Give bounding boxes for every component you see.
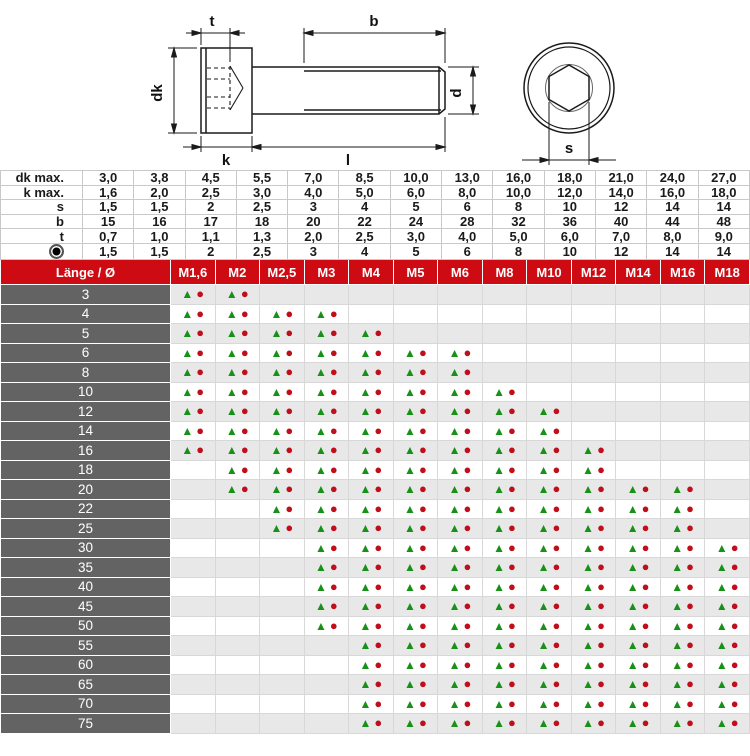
availability-cell: ▲●	[438, 441, 483, 461]
availability-cell	[260, 558, 305, 578]
availability-cell: ▲●	[260, 324, 305, 344]
availability-cell: ▲●	[705, 636, 750, 656]
availability-cell: ▲●	[616, 597, 661, 617]
triangle-icon: ▲	[315, 385, 327, 399]
length-label: 14	[1, 421, 171, 441]
spec-row-label: dk max.	[1, 171, 83, 186]
availability-cell: ▲●	[527, 675, 572, 695]
availability-cell	[215, 519, 260, 539]
triangle-icon: ▲	[226, 463, 238, 477]
availability-cell: ▲●	[304, 538, 349, 558]
circle-icon: ●	[686, 657, 694, 672]
circle-icon: ●	[731, 559, 739, 574]
circle-icon: ●	[508, 442, 516, 457]
availability-cell: ▲●	[616, 577, 661, 597]
circle-icon: ●	[463, 637, 471, 652]
triangle-icon: ▲	[315, 326, 327, 340]
length-label: 16	[1, 441, 171, 461]
triangle-icon: ▲	[315, 619, 327, 633]
spec-value: 1,5	[83, 200, 134, 215]
availability-cell	[260, 655, 305, 675]
availability-cell: ▲●	[527, 558, 572, 578]
spec-value: 5	[390, 200, 441, 215]
availability-cell: ▲●	[482, 421, 527, 441]
length-label: 30	[1, 538, 171, 558]
spec-value: 0,7	[83, 229, 134, 244]
circle-icon: ●	[731, 696, 739, 711]
triangle-icon: ▲	[226, 404, 238, 418]
circle-icon: ●	[597, 637, 605, 652]
availability-cell: ▲●	[438, 499, 483, 519]
circle-icon: ●	[419, 442, 427, 457]
triangle-icon: ▲	[181, 443, 193, 457]
availability-cell: ▲●	[438, 714, 483, 734]
triangle-icon: ▲	[582, 482, 594, 496]
circle-icon: ●	[374, 501, 382, 516]
circle-icon: ●	[463, 442, 471, 457]
circle-icon: ●	[463, 598, 471, 613]
circle-icon: ●	[686, 520, 694, 535]
spec-value: 18	[236, 214, 287, 229]
availability-cell: ▲●	[482, 694, 527, 714]
availability-cell	[438, 304, 483, 324]
triangle-icon: ▲	[226, 365, 238, 379]
availability-cell: ▲●	[304, 421, 349, 441]
triangle-icon: ▲	[360, 638, 372, 652]
triangle-icon: ▲	[449, 521, 461, 535]
circle-icon: ●	[686, 715, 694, 730]
triangle-icon: ▲	[315, 443, 327, 457]
availability-cell: ▲●	[527, 597, 572, 617]
availability-cell: ▲●	[349, 577, 394, 597]
availability-cell: ▲●	[571, 538, 616, 558]
availability-cell	[171, 636, 216, 656]
availability-cell: ▲●	[527, 694, 572, 714]
spec-value: 7,0	[288, 171, 339, 186]
circle-icon: ●	[419, 618, 427, 633]
matrix-row: 25▲●▲●▲●▲●▲●▲●▲●▲●▲●▲●	[1, 519, 750, 539]
circle-icon: ●	[419, 696, 427, 711]
circle-icon: ●	[553, 481, 561, 496]
circle-icon: ●	[597, 501, 605, 516]
triangle-icon: ▲	[226, 443, 238, 457]
triangle-icon: ▲	[360, 463, 372, 477]
triangle-icon: ▲	[538, 677, 550, 691]
triangle-icon: ▲	[404, 404, 416, 418]
circle-icon: ●	[463, 423, 471, 438]
circle-icon: ●	[508, 715, 516, 730]
availability-cell: ▲●	[304, 577, 349, 597]
triangle-icon: ▲	[493, 521, 505, 535]
triangle-icon: ▲	[270, 521, 282, 535]
label-dk: dk	[149, 84, 166, 102]
spec-value: 32	[493, 214, 544, 229]
availability-cell: ▲●	[616, 675, 661, 695]
spec-value: 24,0	[647, 171, 698, 186]
triangle-icon: ▲	[270, 443, 282, 457]
availability-cell	[304, 285, 349, 305]
availability-cell: ▲●	[705, 597, 750, 617]
availability-cell: ▲●	[482, 402, 527, 422]
circle-icon: ●	[285, 462, 293, 477]
circle-icon: ●	[196, 325, 204, 340]
triangle-icon: ▲	[181, 365, 193, 379]
circle-icon: ●	[330, 481, 338, 496]
triangle-icon: ▲	[315, 599, 327, 613]
matrix-row: 10▲●▲●▲●▲●▲●▲●▲●▲●	[1, 382, 750, 402]
availability-cell: ▲●	[482, 519, 527, 539]
circle-icon: ●	[508, 559, 516, 574]
triangle-icon: ▲	[270, 385, 282, 399]
availability-cell	[705, 402, 750, 422]
availability-cell	[171, 499, 216, 519]
availability-cell: ▲●	[393, 343, 438, 363]
circle-icon: ●	[597, 598, 605, 613]
spec-table-body: dk max.3,03,84,55,57,08,510,013,016,018,…	[1, 171, 750, 260]
spec-value: 48	[698, 214, 749, 229]
spec-value: 4,0	[442, 229, 493, 244]
triangle-icon: ▲	[404, 365, 416, 379]
triangle-icon: ▲	[270, 365, 282, 379]
availability-cell	[171, 480, 216, 500]
circle-icon: ●	[463, 715, 471, 730]
length-label: 55	[1, 636, 171, 656]
availability-cell: ▲●	[482, 675, 527, 695]
triangle-icon: ▲	[671, 599, 683, 613]
spec-value: 8,5	[339, 171, 390, 186]
availability-cell	[705, 421, 750, 441]
circle-icon: ●	[374, 364, 382, 379]
availability-cell	[660, 363, 705, 383]
spec-value: 10	[544, 200, 595, 215]
availability-cell	[215, 675, 260, 695]
triangle-icon: ▲	[582, 463, 594, 477]
triangle-icon: ▲	[538, 599, 550, 613]
availability-cell: ▲●	[349, 441, 394, 461]
circle-icon: ●	[686, 618, 694, 633]
triangle-icon: ▲	[181, 346, 193, 360]
matrix-row: 8▲●▲●▲●▲●▲●▲●▲●	[1, 363, 750, 383]
circle-icon: ●	[597, 540, 605, 555]
triangle-icon: ▲	[493, 677, 505, 691]
triangle-icon: ▲	[493, 463, 505, 477]
triangle-icon: ▲	[360, 502, 372, 516]
availability-cell: ▲●	[660, 499, 705, 519]
spec-value: 16,0	[493, 171, 544, 186]
availability-cell: ▲●	[215, 324, 260, 344]
availability-cell: ▲●	[304, 402, 349, 422]
triangle-icon: ▲	[582, 716, 594, 730]
availability-cell: ▲●	[260, 382, 305, 402]
spec-row: dk max.3,03,84,55,57,08,510,013,016,018,…	[1, 171, 750, 186]
triangle-icon: ▲	[404, 385, 416, 399]
triangle-icon: ▲	[493, 560, 505, 574]
availability-cell: ▲●	[171, 421, 216, 441]
availability-cell: ▲●	[705, 714, 750, 734]
availability-cell: ▲●	[660, 597, 705, 617]
triangle-icon: ▲	[671, 482, 683, 496]
circle-icon: ●	[330, 618, 338, 633]
triangle-icon: ▲	[671, 502, 683, 516]
spec-value: 1,3	[236, 229, 287, 244]
matrix-row: 55▲●▲●▲●▲●▲●▲●▲●▲●▲●	[1, 636, 750, 656]
availability-cell	[616, 304, 661, 324]
availability-cell	[616, 402, 661, 422]
availability-cell: ▲●	[393, 363, 438, 383]
triangle-icon: ▲	[449, 482, 461, 496]
triangle-icon: ▲	[538, 716, 550, 730]
circle-icon: ●	[196, 384, 204, 399]
availability-cell: ▲●	[215, 402, 260, 422]
circle-icon: ●	[374, 403, 382, 418]
triangle-icon: ▲	[360, 658, 372, 672]
triangle-icon: ▲	[627, 521, 639, 535]
circle-icon: ●	[285, 442, 293, 457]
availability-cell: ▲●	[304, 558, 349, 578]
spec-value: 16,0	[647, 185, 698, 200]
availability-cell	[393, 324, 438, 344]
availability-cell: ▲●	[438, 558, 483, 578]
circle-icon: ●	[374, 345, 382, 360]
spec-value: 3,0	[236, 185, 287, 200]
availability-cell	[660, 285, 705, 305]
screw-technical-drawing: t b dk d k l s	[0, 0, 750, 170]
circle-icon: ●	[508, 481, 516, 496]
triangle-icon: ▲	[671, 541, 683, 555]
spec-value: 16	[134, 214, 185, 229]
availability-cell	[171, 714, 216, 734]
spec-value: 20	[288, 214, 339, 229]
circle-icon: ●	[686, 579, 694, 594]
availability-cell	[171, 558, 216, 578]
availability-cell: ▲●	[438, 382, 483, 402]
availability-cell: ▲●	[349, 675, 394, 695]
matrix-row: 18▲●▲●▲●▲●▲●▲●▲●▲●▲●	[1, 460, 750, 480]
circle-icon: ●	[374, 520, 382, 535]
spec-value: 18,0	[698, 185, 749, 200]
circle-icon: ●	[419, 715, 427, 730]
length-label: 5	[1, 324, 171, 344]
availability-cell: ▲●	[171, 382, 216, 402]
availability-cell	[660, 382, 705, 402]
availability-cell: ▲●	[304, 616, 349, 636]
circle-icon: ●	[241, 364, 249, 379]
circle-icon: ●	[553, 657, 561, 672]
bullseye-icon	[49, 244, 64, 259]
availability-cell: ▲●	[260, 480, 305, 500]
circle-icon: ●	[330, 520, 338, 535]
availability-cell: ▲●	[349, 343, 394, 363]
circle-icon: ●	[330, 501, 338, 516]
circle-icon: ●	[285, 384, 293, 399]
triangle-icon: ▲	[404, 677, 416, 691]
circle-icon: ●	[686, 481, 694, 496]
availability-cell	[527, 285, 572, 305]
triangle-icon: ▲	[493, 599, 505, 613]
triangle-icon: ▲	[315, 580, 327, 594]
triangle-icon: ▲	[181, 287, 193, 301]
spec-value: 2,5	[236, 243, 287, 259]
spec-value: 40	[595, 214, 646, 229]
spec-value: 14,0	[595, 185, 646, 200]
availability-cell: ▲●	[393, 714, 438, 734]
availability-cell: ▲●	[571, 597, 616, 617]
triangle-icon: ▲	[582, 521, 594, 535]
triangle-icon: ▲	[404, 424, 416, 438]
availability-cell: ▲●	[438, 597, 483, 617]
circle-icon: ●	[419, 364, 427, 379]
circle-icon: ●	[597, 579, 605, 594]
availability-cell: ▲●	[482, 538, 527, 558]
triangle-icon: ▲	[449, 560, 461, 574]
availability-cell: ▲●	[482, 460, 527, 480]
availability-cell: ▲●	[393, 460, 438, 480]
triangle-icon: ▲	[627, 482, 639, 496]
availability-cell	[304, 675, 349, 695]
availability-cell: ▲●	[349, 558, 394, 578]
triangle-icon: ▲	[270, 482, 282, 496]
circle-icon: ●	[508, 540, 516, 555]
triangle-icon: ▲	[582, 443, 594, 457]
circle-icon: ●	[285, 306, 293, 321]
spec-value: 1,5	[134, 243, 185, 259]
triangle-icon: ▲	[449, 346, 461, 360]
triangle-icon: ▲	[582, 560, 594, 574]
circle-icon: ●	[553, 676, 561, 691]
spec-value: 5,5	[236, 171, 287, 186]
length-label: 10	[1, 382, 171, 402]
circle-icon: ●	[374, 657, 382, 672]
circle-icon: ●	[642, 618, 650, 633]
triangle-icon: ▲	[627, 541, 639, 555]
spec-row: k max.1,62,02,53,04,05,06,08,010,012,014…	[1, 185, 750, 200]
triangle-icon: ▲	[582, 580, 594, 594]
availability-cell	[660, 460, 705, 480]
circle-icon: ●	[419, 657, 427, 672]
triangle-icon: ▲	[404, 560, 416, 574]
spec-row: t0,71,01,11,32,02,53,04,05,06,07,08,09,0	[1, 229, 750, 244]
triangle-icon: ▲	[449, 638, 461, 652]
spec-value: 4,5	[185, 171, 236, 186]
circle-icon: ●	[597, 618, 605, 633]
circle-icon: ●	[463, 462, 471, 477]
availability-cell	[527, 343, 572, 363]
circle-icon: ●	[642, 715, 650, 730]
availability-cell: ▲●	[660, 577, 705, 597]
spec-value: 12	[595, 200, 646, 215]
circle-icon: ●	[731, 715, 739, 730]
triangle-icon: ▲	[404, 697, 416, 711]
triangle-icon: ▲	[404, 599, 416, 613]
end-view	[524, 43, 614, 133]
triangle-icon: ▲	[360, 482, 372, 496]
availability-cell: ▲●	[393, 382, 438, 402]
availability-cell: ▲●	[571, 655, 616, 675]
availability-cell: ▲●	[482, 597, 527, 617]
spec-value: 3,0	[83, 171, 134, 186]
circle-icon: ●	[374, 462, 382, 477]
availability-cell	[660, 421, 705, 441]
availability-cell: ▲●	[527, 499, 572, 519]
matrix-row: 22▲●▲●▲●▲●▲●▲●▲●▲●▲●▲●	[1, 499, 750, 519]
triangle-icon: ▲	[493, 443, 505, 457]
triangle-icon: ▲	[493, 502, 505, 516]
spec-value: 8	[493, 200, 544, 215]
circle-icon: ●	[597, 462, 605, 477]
circle-icon: ●	[374, 676, 382, 691]
triangle-icon: ▲	[181, 307, 193, 321]
availability-cell: ▲●	[705, 558, 750, 578]
triangle-icon: ▲	[538, 521, 550, 535]
triangle-icon: ▲	[538, 697, 550, 711]
spec-value: 5,0	[339, 185, 390, 200]
circle-icon: ●	[508, 657, 516, 672]
spec-value: 17	[185, 214, 236, 229]
availability-cell: ▲●	[527, 460, 572, 480]
triangle-icon: ▲	[538, 443, 550, 457]
matrix-row: 4▲●▲●▲●▲●	[1, 304, 750, 324]
availability-cell	[393, 304, 438, 324]
availability-cell: ▲●	[171, 285, 216, 305]
circle-icon: ●	[597, 520, 605, 535]
availability-cell: ▲●	[705, 538, 750, 558]
circle-icon: ●	[463, 618, 471, 633]
spec-value: 2	[185, 200, 236, 215]
availability-cell: ▲●	[482, 577, 527, 597]
matrix-row: 6▲●▲●▲●▲●▲●▲●▲●	[1, 343, 750, 363]
circle-icon: ●	[463, 345, 471, 360]
spec-value: 4	[339, 243, 390, 259]
triangle-icon: ▲	[627, 638, 639, 652]
circle-icon: ●	[508, 598, 516, 613]
circle-icon: ●	[553, 501, 561, 516]
circle-icon: ●	[285, 403, 293, 418]
availability-cell: ▲●	[571, 714, 616, 734]
availability-cell: ▲●	[171, 363, 216, 383]
circle-icon: ●	[241, 384, 249, 399]
availability-cell: ▲●	[215, 285, 260, 305]
spec-value: 12,0	[544, 185, 595, 200]
spec-row: b15161718202224283236404448	[1, 214, 750, 229]
availability-cell	[571, 421, 616, 441]
triangle-icon: ▲	[360, 541, 372, 555]
availability-cell: ▲●	[660, 519, 705, 539]
circle-icon: ●	[419, 676, 427, 691]
triangle-icon: ▲	[449, 716, 461, 730]
circle-icon: ●	[419, 559, 427, 574]
availability-cell: ▲●	[438, 636, 483, 656]
availability-cell: ▲●	[705, 694, 750, 714]
circle-icon: ●	[241, 442, 249, 457]
matrix-column-header: M12	[571, 260, 616, 285]
matrix-column-header: M18	[705, 260, 750, 285]
availability-cell	[438, 324, 483, 344]
matrix-row: 75▲●▲●▲●▲●▲●▲●▲●▲●▲●	[1, 714, 750, 734]
triangle-icon: ▲	[716, 560, 728, 574]
circle-icon: ●	[330, 579, 338, 594]
availability-cell: ▲●	[571, 636, 616, 656]
circle-icon: ●	[419, 598, 427, 613]
availability-cell	[215, 714, 260, 734]
spec-value: 4	[339, 200, 390, 215]
circle-icon: ●	[508, 403, 516, 418]
circle-icon: ●	[419, 384, 427, 399]
availability-cell	[304, 655, 349, 675]
availability-cell: ▲●	[171, 343, 216, 363]
triangle-icon: ▲	[404, 482, 416, 496]
availability-cell: ▲●	[393, 675, 438, 695]
circle-icon: ●	[642, 598, 650, 613]
